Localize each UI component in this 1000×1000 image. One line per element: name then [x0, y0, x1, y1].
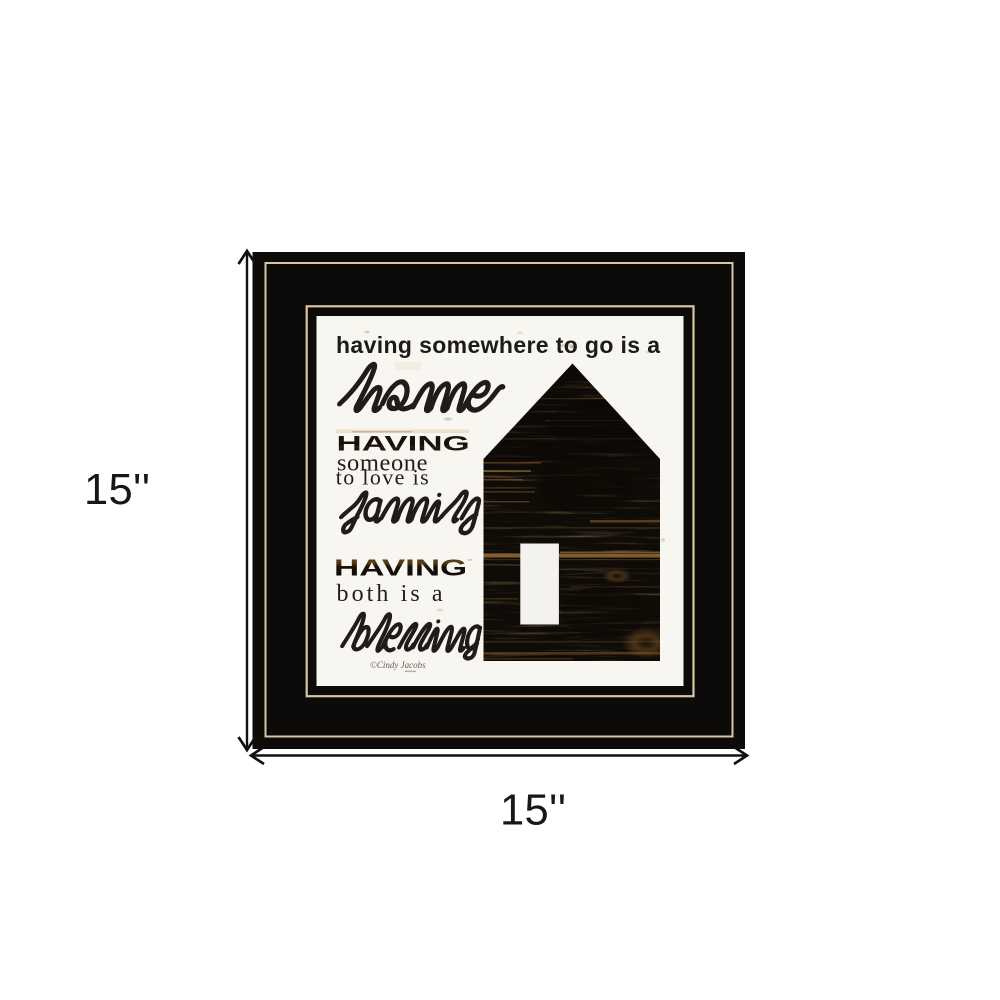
svg-text:to love is: to love is [336, 464, 429, 489]
svg-text:©Cindy Jacobs: ©Cindy Jacobs [370, 660, 426, 670]
svg-text:having somewhere to go is a: having somewhere to go is a [336, 332, 660, 358]
svg-text:15'': 15'' [84, 466, 150, 514]
svg-text:15'': 15'' [500, 786, 566, 834]
svg-text:HAVING: HAVING [334, 555, 467, 581]
